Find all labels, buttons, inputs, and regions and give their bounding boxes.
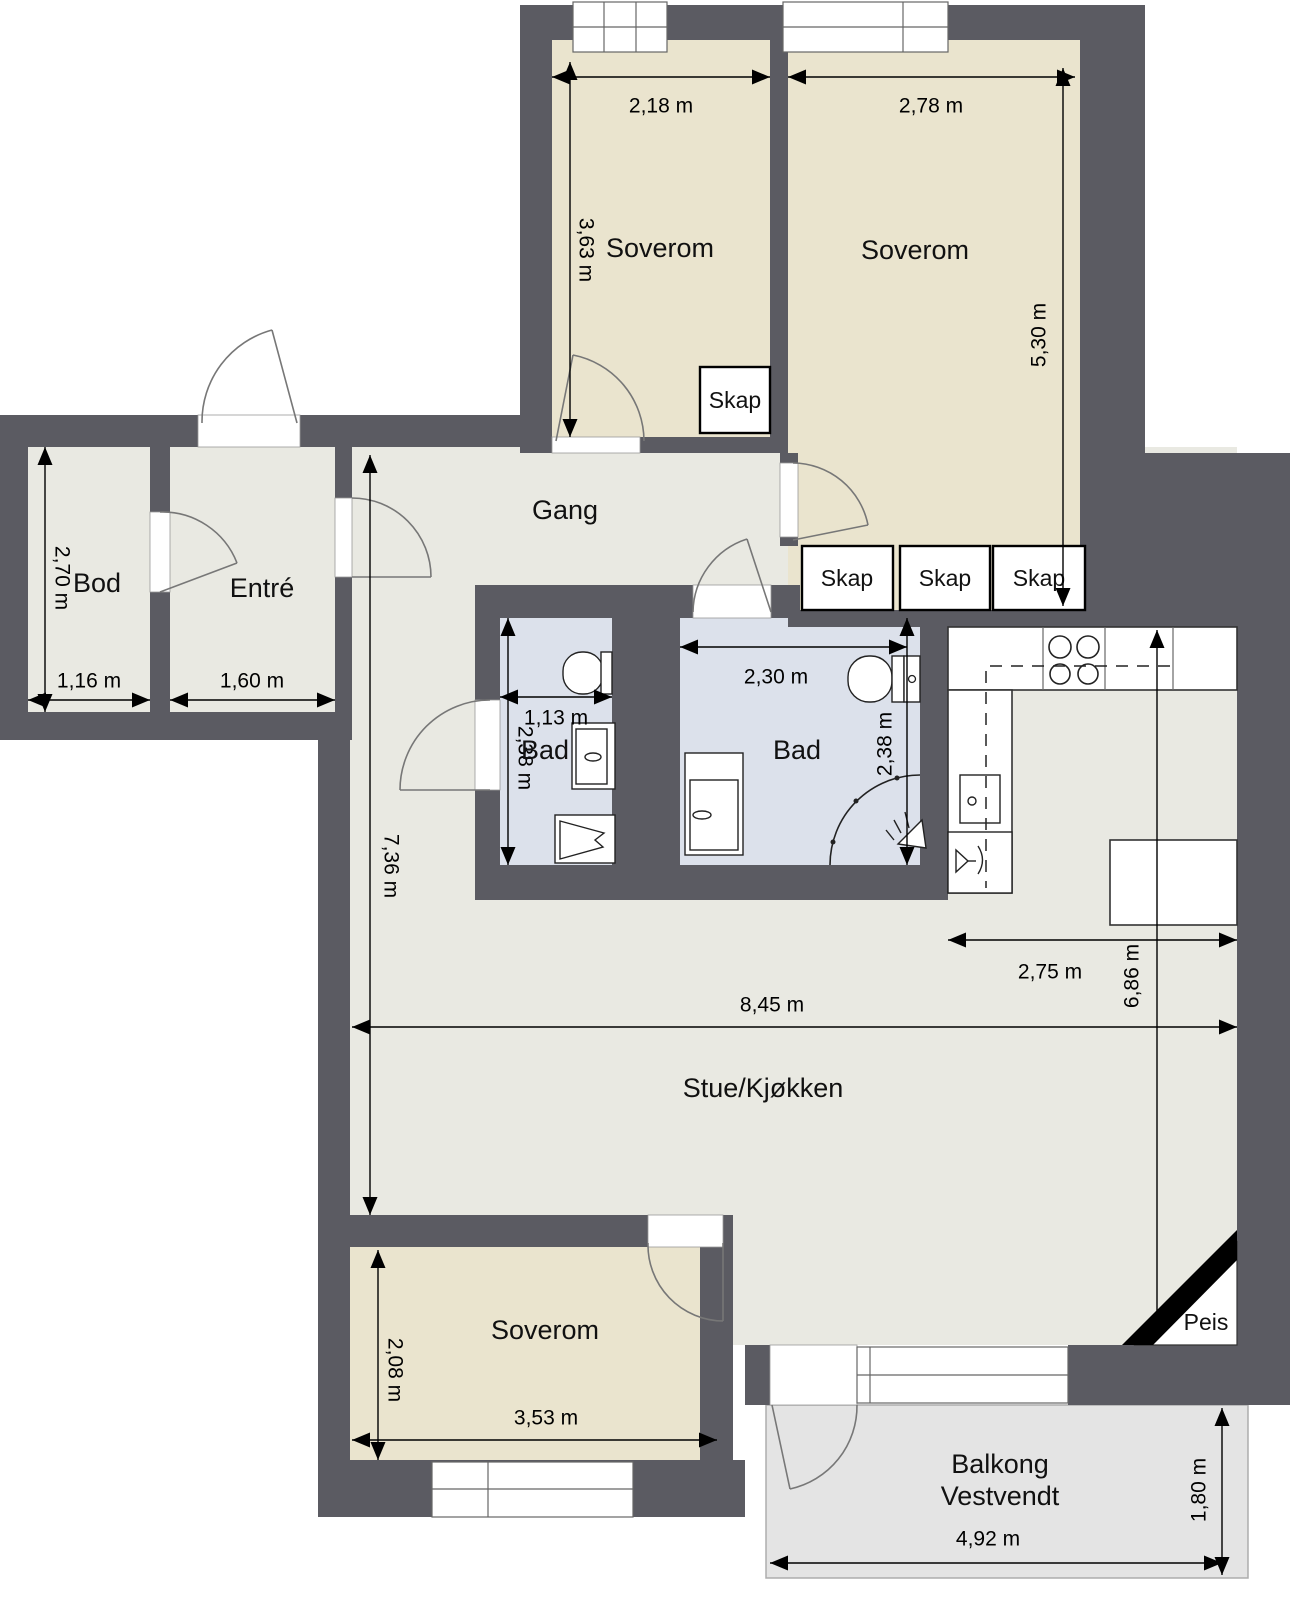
closet-row-1: Skap	[802, 546, 893, 610]
svg-text:4,92 m: 4,92 m	[956, 1528, 1020, 1551]
svg-text:2,70 m: 2,70 m	[50, 546, 73, 610]
dishwasher-icon	[948, 832, 1012, 893]
entrance-door	[202, 330, 297, 423]
closet-row-2: Skap	[900, 546, 990, 610]
svg-text:2,08 m: 2,08 m	[383, 1338, 406, 1402]
svg-text:2,18 m: 2,18 m	[629, 95, 693, 118]
svg-text:5,30 m: 5,30 m	[1028, 303, 1051, 367]
label-soverom-bottom: Soverom	[491, 1315, 599, 1345]
toilet-icon-small-bath	[563, 652, 612, 694]
closet-label: Skap	[1013, 565, 1065, 591]
soverom3-opening	[648, 1215, 723, 1247]
svg-text:8,45 m: 8,45 m	[740, 994, 804, 1017]
sink-icon-large-bath	[685, 753, 743, 855]
entre-gang-opening	[335, 498, 352, 577]
svg-text:1,80 m: 1,80 m	[1188, 1458, 1211, 1522]
label-soverom-top-right: Soverom	[861, 235, 969, 265]
label-soverom-top-left: Soverom	[606, 233, 714, 263]
svg-text:2,75 m: 2,75 m	[1018, 961, 1082, 984]
label-bad-large: Bad	[773, 735, 821, 765]
closet-label: Skap	[821, 565, 873, 591]
sink-icon-small-bath	[572, 723, 615, 789]
svg-text:3,63 m: 3,63 m	[574, 218, 597, 282]
label-bad-small: Bad	[521, 735, 569, 765]
window-soverom1	[573, 2, 667, 52]
fireplace-label: Peis	[1184, 1309, 1229, 1335]
svg-text:2,78 m: 2,78 m	[899, 95, 963, 118]
svg-text:1,60 m: 1,60 m	[220, 670, 284, 693]
bad-large-opening	[693, 585, 771, 618]
svg-text:2,38 m: 2,38 m	[874, 712, 897, 776]
label-balkong-line2: Vestvendt	[941, 1481, 1060, 1511]
window-balcony	[857, 1347, 1068, 1403]
label-gang: Gang	[532, 495, 598, 525]
kitchen-island	[1110, 840, 1237, 925]
svg-text:7,36 m: 7,36 m	[379, 834, 402, 898]
svg-text:3,53 m: 3,53 m	[514, 1407, 578, 1430]
bod-opening	[150, 512, 170, 592]
floor-plan-svg: Skap Skap Skap Skap	[0, 0, 1299, 1600]
floor-plan: Skap Skap Skap Skap	[0, 0, 1299, 1600]
washer-icon-small-bath	[555, 815, 615, 863]
window-soverom2	[783, 2, 948, 52]
balcony-door-opening	[770, 1345, 857, 1405]
window-soverom3	[432, 1462, 633, 1517]
closet-soverom1: Skap	[700, 367, 770, 433]
svg-text:2,30 m: 2,30 m	[744, 666, 808, 689]
kitchen-sink-icon	[960, 775, 1000, 823]
label-bod: Bod	[73, 568, 121, 598]
svg-text:1,16 m: 1,16 m	[57, 670, 121, 693]
toilet-icon-large-bath	[848, 656, 920, 702]
label-stue-kjokken: Stue/Kjøkken	[683, 1073, 844, 1103]
label-balkong-line1: Balkong	[951, 1449, 1049, 1479]
label-entre: Entré	[230, 573, 295, 603]
entrance-opening	[198, 415, 300, 447]
svg-text:6,86 m: 6,86 m	[1121, 944, 1144, 1008]
bad-small-opening	[475, 700, 500, 790]
closet-row-3: Skap	[993, 546, 1085, 610]
closet-label: Skap	[919, 565, 971, 591]
soverom1-opening	[552, 437, 640, 453]
closet-label: Skap	[709, 387, 761, 413]
soverom2-opening	[780, 463, 798, 537]
